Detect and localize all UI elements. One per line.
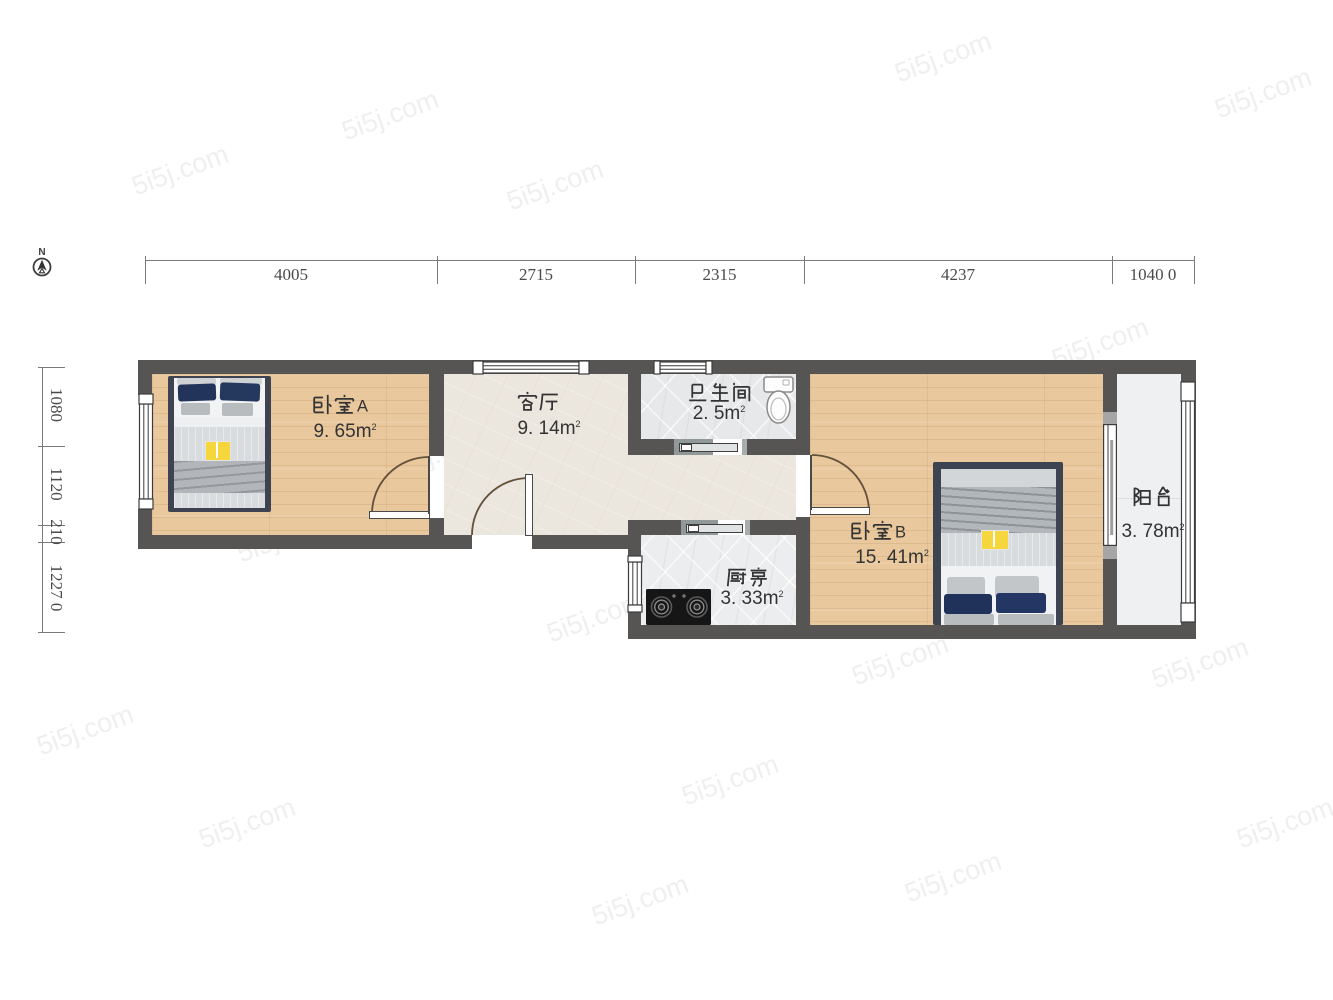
svg-text:B: B [895,524,906,542]
svg-text:A: A [357,398,368,416]
svg-text:N: N [38,247,45,258]
